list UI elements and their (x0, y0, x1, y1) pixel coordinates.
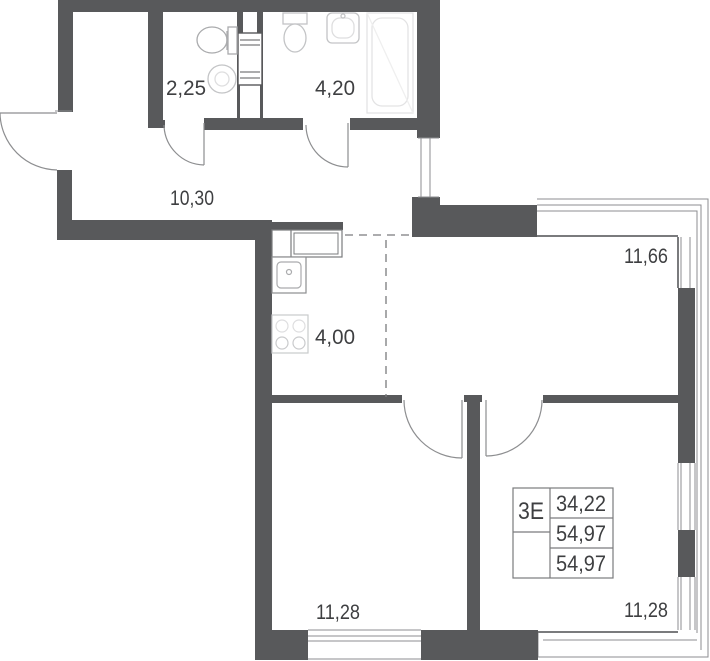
floor-plan-drawing: 2,25 4,20 10,30 11,66 4,00 11,28 11,28 3… (0, 0, 710, 661)
floor-plan: 2,25 4,20 10,30 11,66 4,00 11,28 11,28 3… (0, 0, 710, 661)
window-bathroom-right (418, 138, 439, 197)
shaft-icon (238, 33, 262, 85)
wc-door (164, 123, 204, 165)
window-right-middle (678, 463, 695, 530)
entrance-door (0, 111, 72, 170)
room-area-label-kitchen: 4,00 (315, 326, 355, 349)
bathtub-icon (367, 13, 413, 113)
stamp-type-label: 3Е (518, 498, 544, 525)
room-area-label-bedroom-left: 11,28 (316, 601, 360, 624)
stamp-area: 54,97 (556, 521, 606, 546)
room-area-label-living: 11,66 (624, 245, 668, 268)
window-right-upper (681, 237, 690, 288)
kitchen-sink-icon (272, 257, 306, 293)
washbasin-icon (327, 13, 359, 43)
bedroom-left-door (404, 400, 462, 458)
stamp-total-area: 54,97 (556, 551, 606, 576)
window-right-lower (678, 577, 695, 630)
stove-icon (272, 315, 308, 353)
stamp-living-area: 34,22 (556, 491, 606, 516)
toilet-icon (283, 13, 307, 52)
round-sink-icon (208, 65, 236, 93)
toilet-icon (197, 27, 237, 54)
kitchen-zone-dashed-boundary (345, 235, 412, 397)
info-stamp: 3Е 34,22 54,97 54,97 (513, 488, 613, 578)
bathroom-door (306, 123, 348, 167)
room-area-label-wc: 2,25 (166, 77, 206, 100)
kitchen-counter (272, 230, 342, 257)
room-area-label-bedroom-right: 11,28 (624, 599, 668, 622)
bedroom-right-door (486, 400, 542, 456)
room-area-label-hallway: 10,30 (170, 187, 214, 210)
window-bottom (308, 630, 421, 659)
room-area-label-bathroom: 4,20 (315, 77, 355, 100)
